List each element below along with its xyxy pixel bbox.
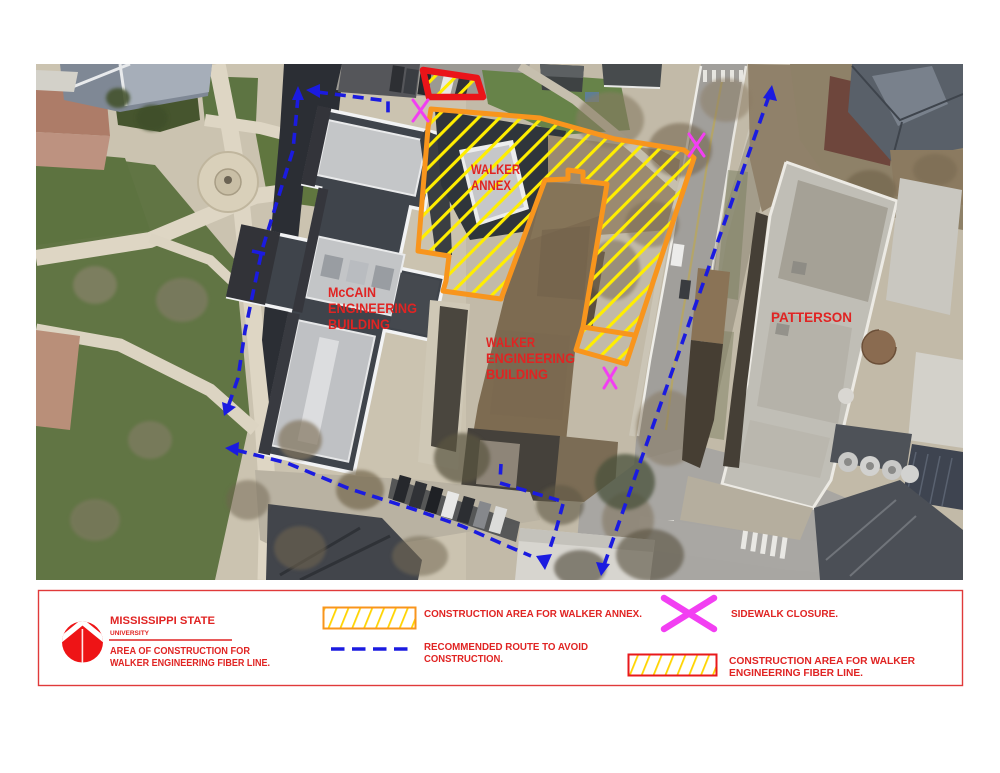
svg-text:CONSTRUCTION AREA FOR WALKER: CONSTRUCTION AREA FOR WALKER: [729, 656, 916, 667]
svg-text:PATTERSON: PATTERSON: [771, 309, 852, 325]
svg-text:ANNEX: ANNEX: [471, 177, 512, 193]
svg-text:AREA OF CONSTRUCTION FOR: AREA OF CONSTRUCTION FOR: [110, 646, 251, 657]
svg-text:BUILDING: BUILDING: [486, 366, 548, 382]
svg-text:CONSTRUCTION.: CONSTRUCTION.: [424, 654, 503, 665]
svg-text:RECOMMENDED ROUTE TO AVOID: RECOMMENDED ROUTE TO AVOID: [424, 642, 588, 653]
svg-text:WALKER: WALKER: [486, 334, 535, 350]
svg-text:McCAIN: McCAIN: [328, 284, 376, 300]
svg-text:WALKER: WALKER: [471, 161, 520, 177]
svg-text:BUILDING: BUILDING: [328, 316, 390, 332]
svg-text:WALKER ENGINEERING FIBER LINE.: WALKER ENGINEERING FIBER LINE.: [110, 658, 270, 669]
svg-text:ENGINEERING: ENGINEERING: [328, 300, 417, 316]
svg-text:ENGINEERING: ENGINEERING: [486, 350, 575, 366]
svg-text:SIDEWALK CLOSURE.: SIDEWALK CLOSURE.: [731, 609, 838, 620]
svg-text:MISSISSIPPI STATE: MISSISSIPPI STATE: [110, 615, 215, 627]
svg-text:CONSTRUCTION AREA FOR WALKER A: CONSTRUCTION AREA FOR WALKER ANNEX.: [424, 609, 642, 620]
svg-text:UNIVERSITY: UNIVERSITY: [110, 630, 150, 637]
svg-text:ENGINEERING FIBER LINE.: ENGINEERING FIBER LINE.: [729, 668, 863, 679]
